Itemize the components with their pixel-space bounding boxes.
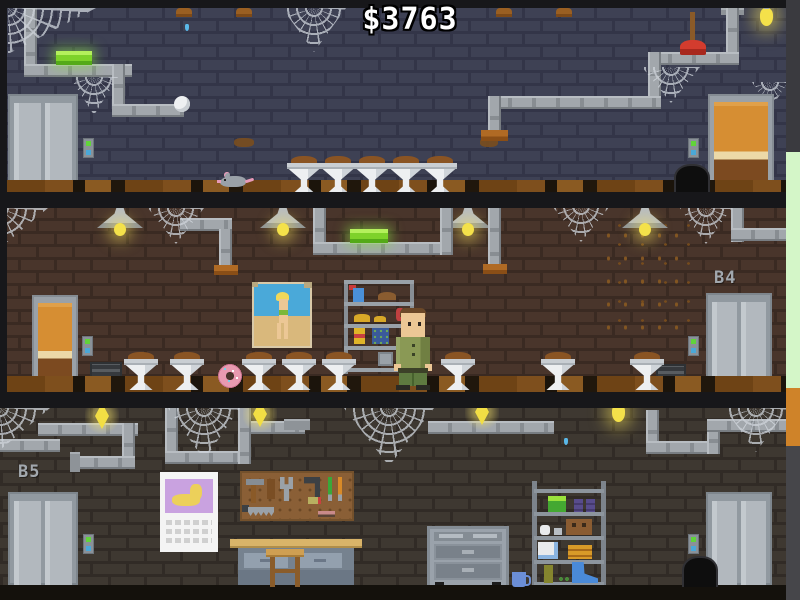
- right-edge-green-shaft: [786, 152, 800, 388]
- pipe-cap: [496, 8, 512, 17]
- spider-egg: [174, 96, 190, 112]
- workbench-drawer[interactable]: [298, 553, 342, 568]
- blue-boot-icon: [572, 562, 598, 583]
- dirty-sink[interactable]: [355, 156, 389, 194]
- right-edge-orange-shaft: [786, 388, 800, 446]
- pipe-cap: [176, 8, 192, 17]
- pipe: [440, 208, 453, 255]
- purple-stack-icon: [586, 499, 595, 512]
- green-fluorescent-lamp: [350, 229, 388, 243]
- pipe: [112, 104, 184, 117]
- purple-stack-icon: [574, 499, 583, 512]
- elevator-door[interactable]: [45, 103, 72, 192]
- dirty-sink[interactable]: [541, 352, 575, 390]
- dirty-sink[interactable]: [287, 156, 321, 194]
- pegboard[interactable]: [240, 471, 354, 521]
- pipe: [219, 229, 232, 267]
- screwdriver-green-icon: [328, 477, 332, 501]
- sponge-pile-icon: [354, 314, 370, 322]
- janitor-character[interactable]: [388, 308, 438, 390]
- ceiling-lamp: [97, 208, 143, 248]
- dirty-sink[interactable]: [282, 352, 316, 390]
- dirty-sink[interactable]: [630, 352, 664, 390]
- floor-divider: [0, 192, 786, 208]
- pipe-cap: [556, 8, 572, 17]
- green-box-icon: [548, 496, 566, 512]
- pipe: [726, 8, 739, 58]
- pipe-flange: [284, 419, 310, 430]
- dirty-sink[interactable]: [322, 352, 356, 390]
- elevator-door[interactable]: [741, 501, 766, 585]
- wrench-icon: [280, 477, 293, 501]
- bottom-floor-ground: [0, 585, 800, 600]
- pipe: [488, 96, 501, 132]
- elevator-call-button[interactable]: [82, 336, 93, 356]
- pipe: [313, 242, 453, 255]
- water-drip: [185, 24, 189, 31]
- pipe: [731, 228, 786, 241]
- bottle-icon: [544, 565, 553, 583]
- brush-icon: [318, 511, 335, 517]
- brown-box-icon: [566, 519, 592, 535]
- detergent-box-icon: [372, 328, 389, 344]
- floor-divider: [0, 392, 786, 408]
- left-edge: [0, 8, 7, 392]
- dirty-sink[interactable]: [389, 156, 423, 194]
- storage-shelf[interactable]: [532, 481, 606, 587]
- elevator-door[interactable]: [14, 103, 41, 192]
- pinup-poster: [252, 282, 312, 348]
- rust-flange: [481, 130, 508, 141]
- pipe: [488, 208, 501, 266]
- stool: [266, 549, 304, 587]
- plunger-handle: [690, 12, 695, 41]
- dirty-sink[interactable]: [321, 156, 355, 194]
- ceiling-lamp: [622, 208, 668, 248]
- rust-flange: [214, 265, 238, 275]
- dirty-sink[interactable]: [170, 352, 204, 390]
- elevator-call-button[interactable]: [83, 138, 94, 158]
- right-edge-dark: [786, 0, 800, 152]
- elevator-call-button[interactable]: [83, 534, 94, 554]
- game-screen: $3763: [0, 0, 800, 600]
- amber-box-icon: [568, 545, 592, 559]
- floor-label-b4: B4: [714, 268, 758, 288]
- pipe-cap: [236, 8, 252, 17]
- mug: [512, 572, 526, 587]
- screwdriver-orange-icon: [338, 477, 342, 501]
- elevator[interactable]: [8, 492, 78, 585]
- rust-flange: [483, 264, 507, 274]
- elevator-call-button[interactable]: [688, 336, 699, 356]
- mallet-icon: [267, 479, 275, 499]
- wooden-door[interactable]: [708, 94, 774, 192]
- green-fluorescent-lamp: [56, 51, 92, 65]
- calendar-grid: [166, 520, 212, 544]
- pipe: [74, 456, 135, 469]
- elevator-door[interactable]: [45, 501, 72, 585]
- tool-cabinet[interactable]: [427, 526, 509, 589]
- floor-label-b5: B5: [18, 462, 62, 482]
- elevator-call-button[interactable]: [688, 138, 699, 158]
- elevator[interactable]: [8, 94, 78, 192]
- door-panel: [714, 102, 768, 192]
- water-drip: [564, 438, 568, 445]
- white-jar-icon: [540, 525, 550, 535]
- ceiling-lamp: [260, 208, 306, 248]
- green-items-icon: [558, 576, 571, 582]
- small-box-icon: [554, 528, 562, 535]
- saw-icon: [248, 507, 274, 516]
- white-box-icon: [538, 542, 558, 559]
- donut[interactable]: [216, 362, 244, 390]
- angle-square-icon: [304, 477, 320, 497]
- calendar: [160, 472, 218, 552]
- dirty-sink[interactable]: [441, 352, 475, 390]
- elevator-door[interactable]: [14, 501, 41, 585]
- pipe-flange: [70, 452, 80, 472]
- character-face: [401, 313, 425, 337]
- sponge-icon: [308, 497, 321, 504]
- pipe: [488, 96, 661, 109]
- dirty-sink[interactable]: [124, 352, 158, 390]
- money-counter: $3763: [330, 2, 490, 37]
- cabinet-drawer[interactable]: [434, 544, 502, 560]
- dirty-sink[interactable]: [423, 156, 457, 194]
- elevator-call-button[interactable]: [688, 534, 699, 554]
- rat[interactable]: [216, 170, 254, 190]
- right-edge-dark: [786, 446, 800, 600]
- trash-hole: [682, 556, 718, 587]
- dirty-sink[interactable]: [242, 352, 276, 390]
- plunger-icon: [680, 40, 706, 55]
- hat-icon: [378, 292, 396, 300]
- cabinet-drawer[interactable]: [434, 562, 502, 580]
- mouse-hole: [674, 164, 710, 194]
- wall-stain: [234, 138, 254, 147]
